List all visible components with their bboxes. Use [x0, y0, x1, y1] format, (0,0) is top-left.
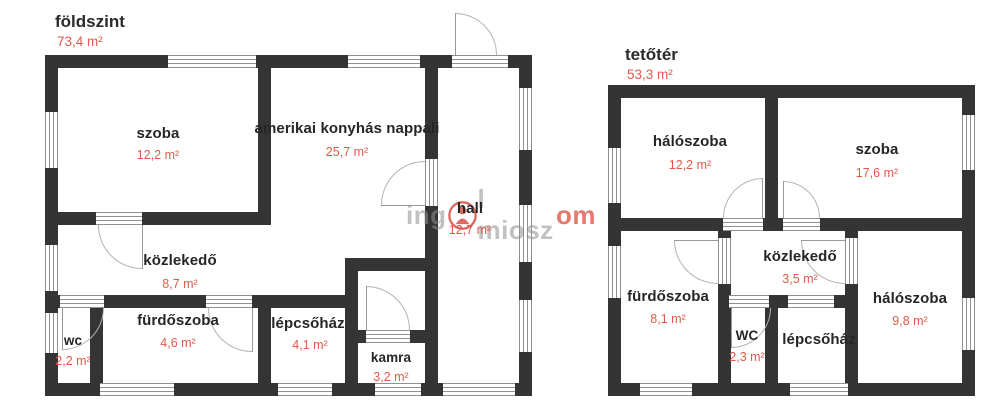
door-leaf [381, 205, 425, 206]
door-threshold [425, 159, 438, 206]
room-area: 12,2 m² [137, 148, 179, 162]
room-area: 12,2 m² [669, 158, 711, 172]
door-leaf [731, 308, 732, 348]
door-threshold [788, 295, 834, 308]
room-label: amerikai konyhás nappali [255, 120, 440, 137]
room-label: szoba [855, 141, 898, 158]
window [519, 300, 532, 352]
window [640, 383, 692, 396]
door-leaf [366, 286, 367, 330]
room-label: fürdőszoba [137, 312, 219, 329]
window [962, 115, 975, 170]
room-area: 3,2 m² [373, 370, 408, 384]
room-label: wc [64, 333, 82, 348]
room-area: 8,1 m² [650, 312, 685, 326]
door-leaf [455, 13, 456, 55]
wall [608, 85, 975, 98]
door-threshold [783, 218, 820, 231]
wall [258, 62, 271, 225]
door-arc [381, 161, 425, 205]
floor-title-attic: tetőtér [625, 45, 678, 65]
door-arc [723, 178, 763, 218]
window [608, 148, 621, 203]
window [348, 55, 420, 68]
door-arc [674, 240, 718, 284]
window [608, 246, 621, 298]
window [45, 313, 58, 353]
door-threshold [60, 295, 104, 308]
window [519, 205, 532, 262]
room-area: 2,3 m² [729, 350, 764, 364]
floor-plan-canvas: földszint 73,4 m² tetőtér 53,3 m² szoba … [0, 0, 1000, 418]
window [790, 383, 848, 396]
room-area: 4,1 m² [292, 338, 327, 352]
window [100, 383, 174, 396]
room-label: lépcsőház [271, 315, 344, 332]
room-label: hálószoba [873, 290, 947, 307]
wall [45, 212, 271, 225]
room-label: kamra [371, 350, 411, 365]
room-label: lépcsőház [782, 331, 855, 348]
door-threshold [366, 330, 410, 343]
room-area: 3,5 m² [782, 272, 817, 286]
window [45, 112, 58, 168]
wall [345, 258, 358, 396]
floor-title-ground: földszint [55, 12, 125, 32]
door-threshold [729, 295, 769, 308]
room-area: 12,7 m² [449, 223, 491, 237]
door-leaf [762, 178, 763, 218]
door-leaf [674, 240, 718, 241]
door-arc [455, 13, 497, 55]
room-label: fürdőszoba [627, 288, 709, 305]
room-label: hall [457, 200, 483, 217]
window [45, 245, 58, 291]
room-label: közlekedő [763, 248, 836, 265]
watermark-text-suffix: om [556, 200, 596, 231]
room-area: 17,6 m² [856, 166, 898, 180]
door-leaf [801, 240, 845, 241]
window [962, 298, 975, 350]
wall [258, 295, 271, 396]
room-label: közlekedő [143, 252, 216, 269]
window [168, 55, 256, 68]
room-area: 4,6 m² [160, 336, 195, 350]
door-threshold [452, 55, 508, 68]
window [519, 88, 532, 150]
room-area: 25,7 m² [326, 145, 368, 159]
door-leaf [62, 308, 63, 350]
door-leaf [783, 181, 784, 218]
door-threshold [206, 295, 252, 308]
window [375, 383, 421, 396]
room-area: 8,7 m² [162, 277, 197, 291]
wall [425, 62, 438, 396]
door-threshold [845, 238, 858, 284]
door-threshold [96, 212, 142, 225]
wall [608, 85, 621, 396]
room-area: 9,8 m² [892, 314, 927, 328]
window [278, 383, 332, 396]
door-threshold [723, 218, 763, 231]
door-arc [783, 181, 820, 218]
door-threshold [718, 238, 731, 284]
floor-area-attic: 53,3 m² [627, 67, 673, 82]
window [443, 383, 515, 396]
room-area: 2,2 m² [55, 354, 90, 368]
door-arc [366, 286, 410, 330]
door-arc [98, 225, 142, 269]
room-label: szoba [136, 125, 179, 142]
door-leaf [252, 308, 253, 352]
room-label: WC [736, 328, 759, 343]
room-label: hálószoba [653, 133, 727, 150]
floor-area-ground: 73,4 m² [57, 34, 103, 49]
wall [765, 85, 778, 231]
